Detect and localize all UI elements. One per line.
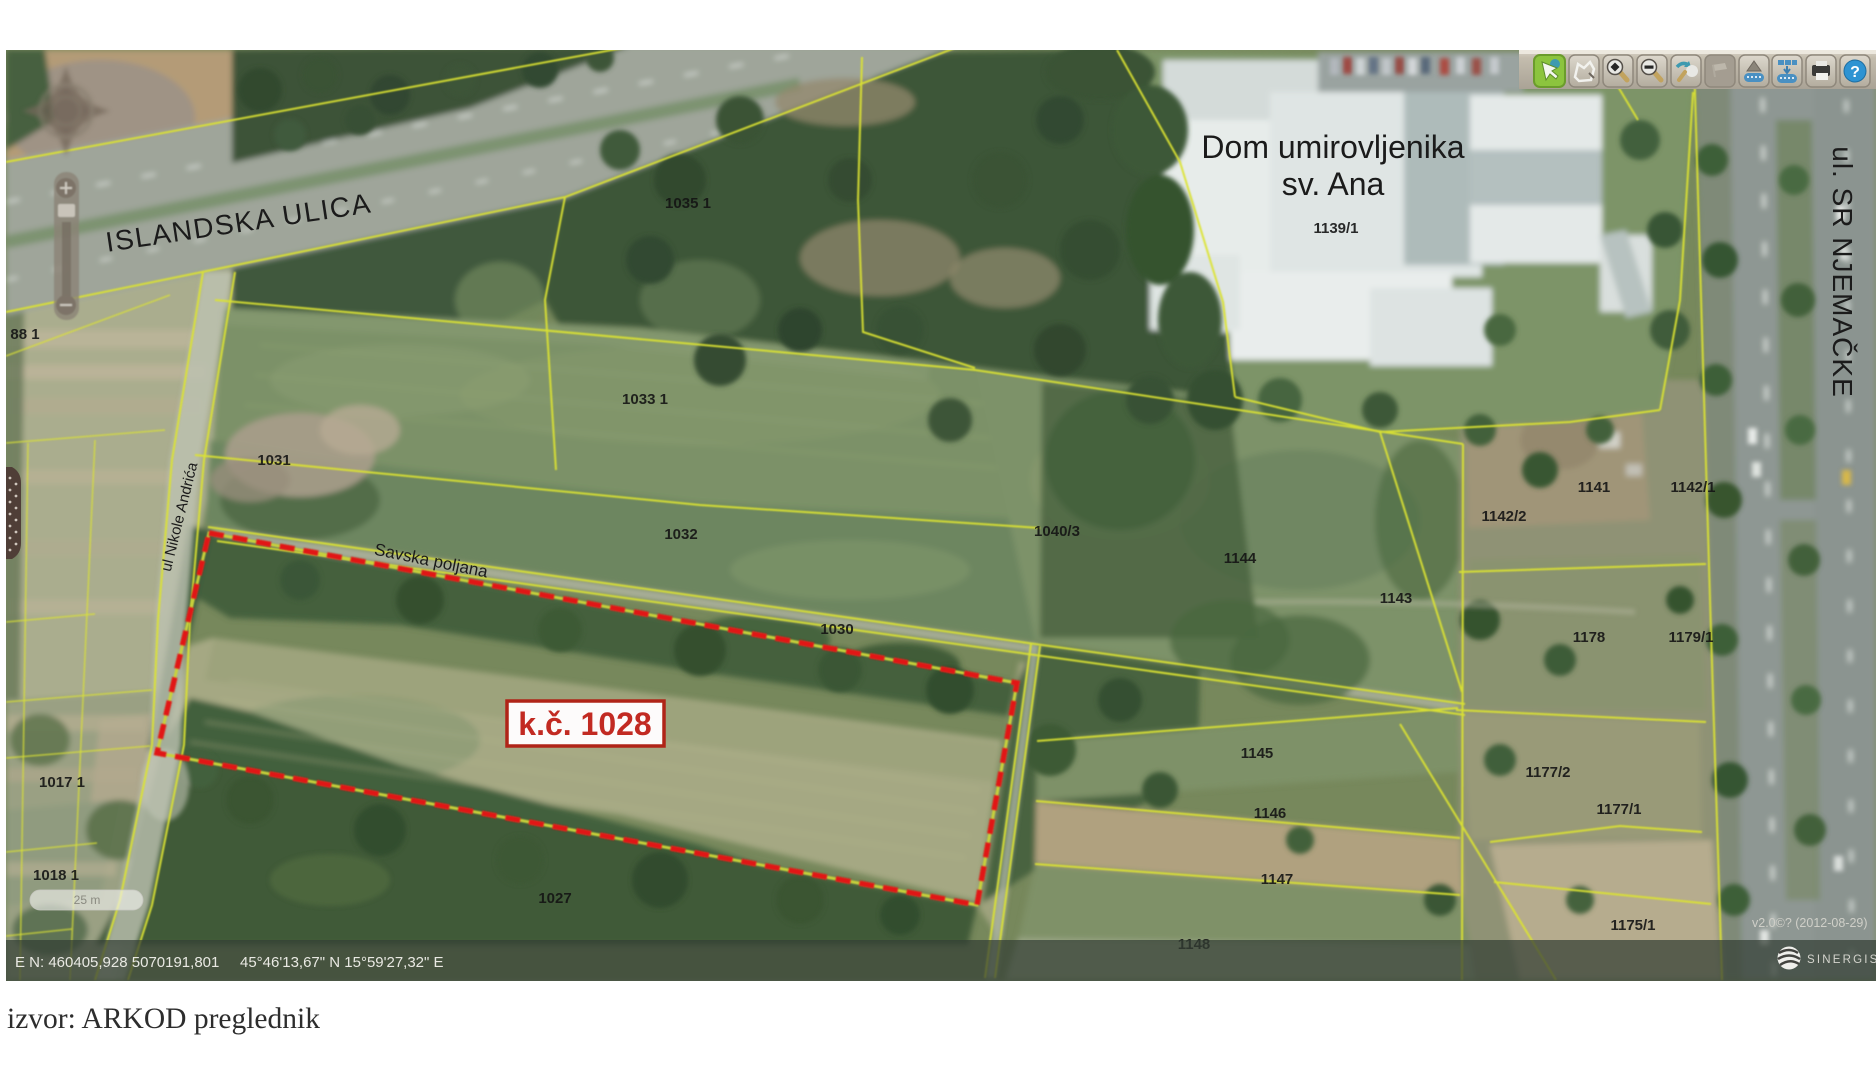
- svg-text:k.č. 1028: k.č. 1028: [518, 706, 651, 742]
- svg-text:izvor: ARKOD preglednik: izvor: ARKOD preglednik: [7, 1003, 320, 1035]
- svg-text:?: ?: [1850, 64, 1860, 81]
- svg-text:sv. Ana: sv. Ana: [1282, 166, 1385, 202]
- svg-text:1143: 1143: [1380, 590, 1413, 607]
- svg-text:v2.0©? (2012-08-29): v2.0©? (2012-08-29): [1752, 916, 1868, 930]
- svg-text:1033 1: 1033 1: [622, 391, 668, 408]
- svg-text:88 1: 88 1: [10, 326, 39, 343]
- svg-text:25 m: 25 m: [74, 893, 101, 907]
- svg-text:1178: 1178: [1573, 629, 1606, 646]
- svg-text:1035 1: 1035 1: [665, 195, 711, 212]
- svg-text:1177/2: 1177/2: [1525, 764, 1570, 781]
- svg-text:1145: 1145: [1241, 745, 1274, 762]
- svg-text:1179/1: 1179/1: [1668, 629, 1713, 646]
- svg-text:1139/1: 1139/1: [1313, 220, 1358, 237]
- svg-text:1144: 1144: [1224, 550, 1257, 567]
- svg-text:1017 1: 1017 1: [39, 774, 85, 791]
- svg-text:1177/1: 1177/1: [1596, 801, 1641, 818]
- svg-text:1027: 1027: [538, 890, 571, 907]
- svg-text:1040/3: 1040/3: [1034, 523, 1080, 540]
- svg-text:1030: 1030: [820, 621, 853, 638]
- svg-text:1142/1: 1142/1: [1670, 479, 1715, 496]
- svg-text:1142/2: 1142/2: [1481, 508, 1526, 525]
- svg-text:1147: 1147: [1261, 871, 1294, 888]
- svg-text:SINERGISE: SINERGISE: [1807, 954, 1876, 966]
- svg-text:45°46'13,67" N 15°59'27,32" E: 45°46'13,67" N 15°59'27,32" E: [240, 954, 444, 971]
- svg-text:ul. SR NJEMAČKE: ul. SR NJEMAČKE: [1827, 146, 1858, 398]
- svg-text:1175/1: 1175/1: [1610, 917, 1655, 934]
- svg-text:1032: 1032: [664, 526, 697, 543]
- svg-text:1141: 1141: [1578, 479, 1611, 496]
- svg-text:E N: 460405,928 5070191,801: E N: 460405,928 5070191,801: [15, 954, 219, 971]
- svg-text:1031: 1031: [257, 452, 290, 469]
- svg-text:Dom umirovljenika: Dom umirovljenika: [1201, 129, 1464, 165]
- svg-text:1018 1: 1018 1: [33, 867, 79, 884]
- svg-text:1146: 1146: [1254, 805, 1287, 822]
